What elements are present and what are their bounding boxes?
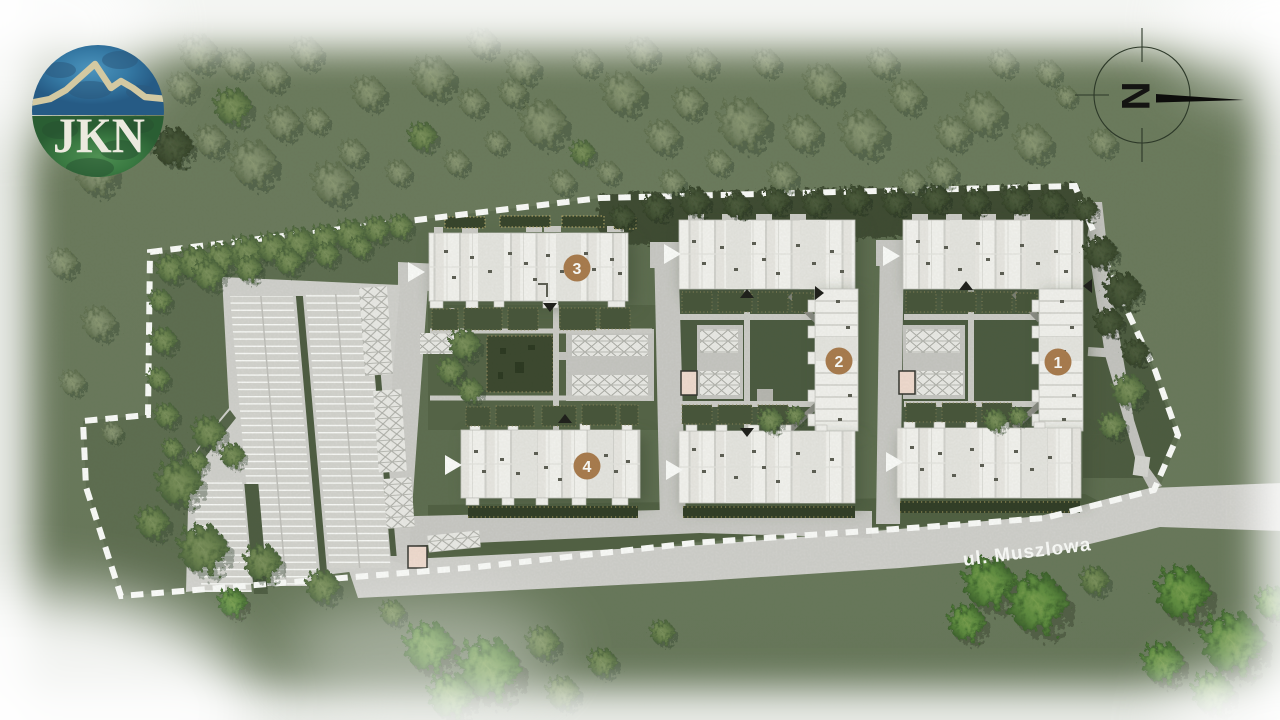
- svg-text:N: N: [1113, 82, 1157, 111]
- svg-text:JKN: JKN: [53, 107, 145, 163]
